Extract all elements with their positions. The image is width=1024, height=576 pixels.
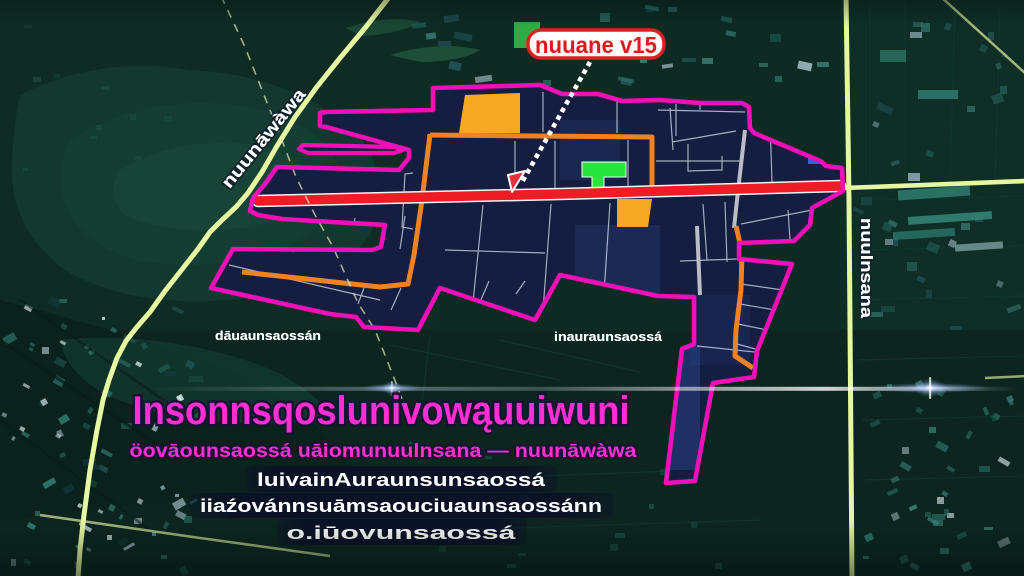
svg-text:nuuane v15: nuuane v15: [535, 32, 657, 58]
svg-text:nuulnsana: nuulnsana: [857, 218, 875, 319]
svg-text:dāuaunsaossán: dāuaunsaossán: [215, 328, 321, 343]
svg-text:iiaźovánnsuāmsaouciuaunsaossán: iiaźovánnsuāmsaouciuaunsaossánn: [200, 496, 602, 516]
svg-text:luivainAuraunsunsaossá: luivainAuraunsunsaossá: [257, 470, 546, 490]
svg-text:öovāounsaossá uāiomunuulnsana: öovāounsaossá uāiomunuulnsana — nuunāwàw…: [130, 441, 637, 462]
svg-text:inauraunsaossá: inauraunsaossá: [554, 329, 663, 344]
svg-text:Insonnsqoslunivowąuuiwuni: Insonnsqoslunivowąuuiwuni: [133, 389, 630, 433]
